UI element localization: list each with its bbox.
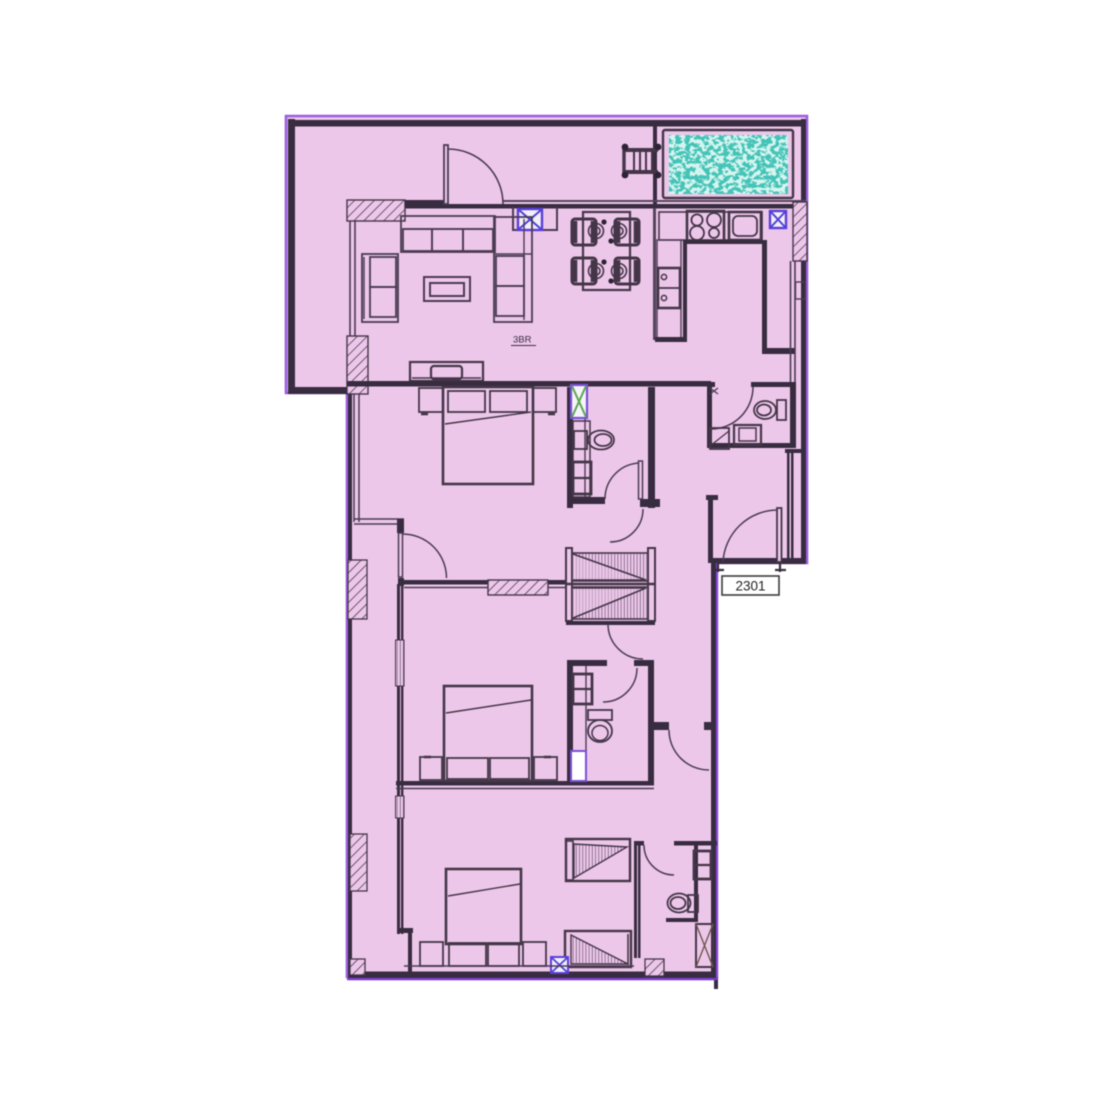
svg-text:3BR: 3BR bbox=[513, 335, 532, 346]
svg-text:2301: 2301 bbox=[735, 579, 765, 594]
